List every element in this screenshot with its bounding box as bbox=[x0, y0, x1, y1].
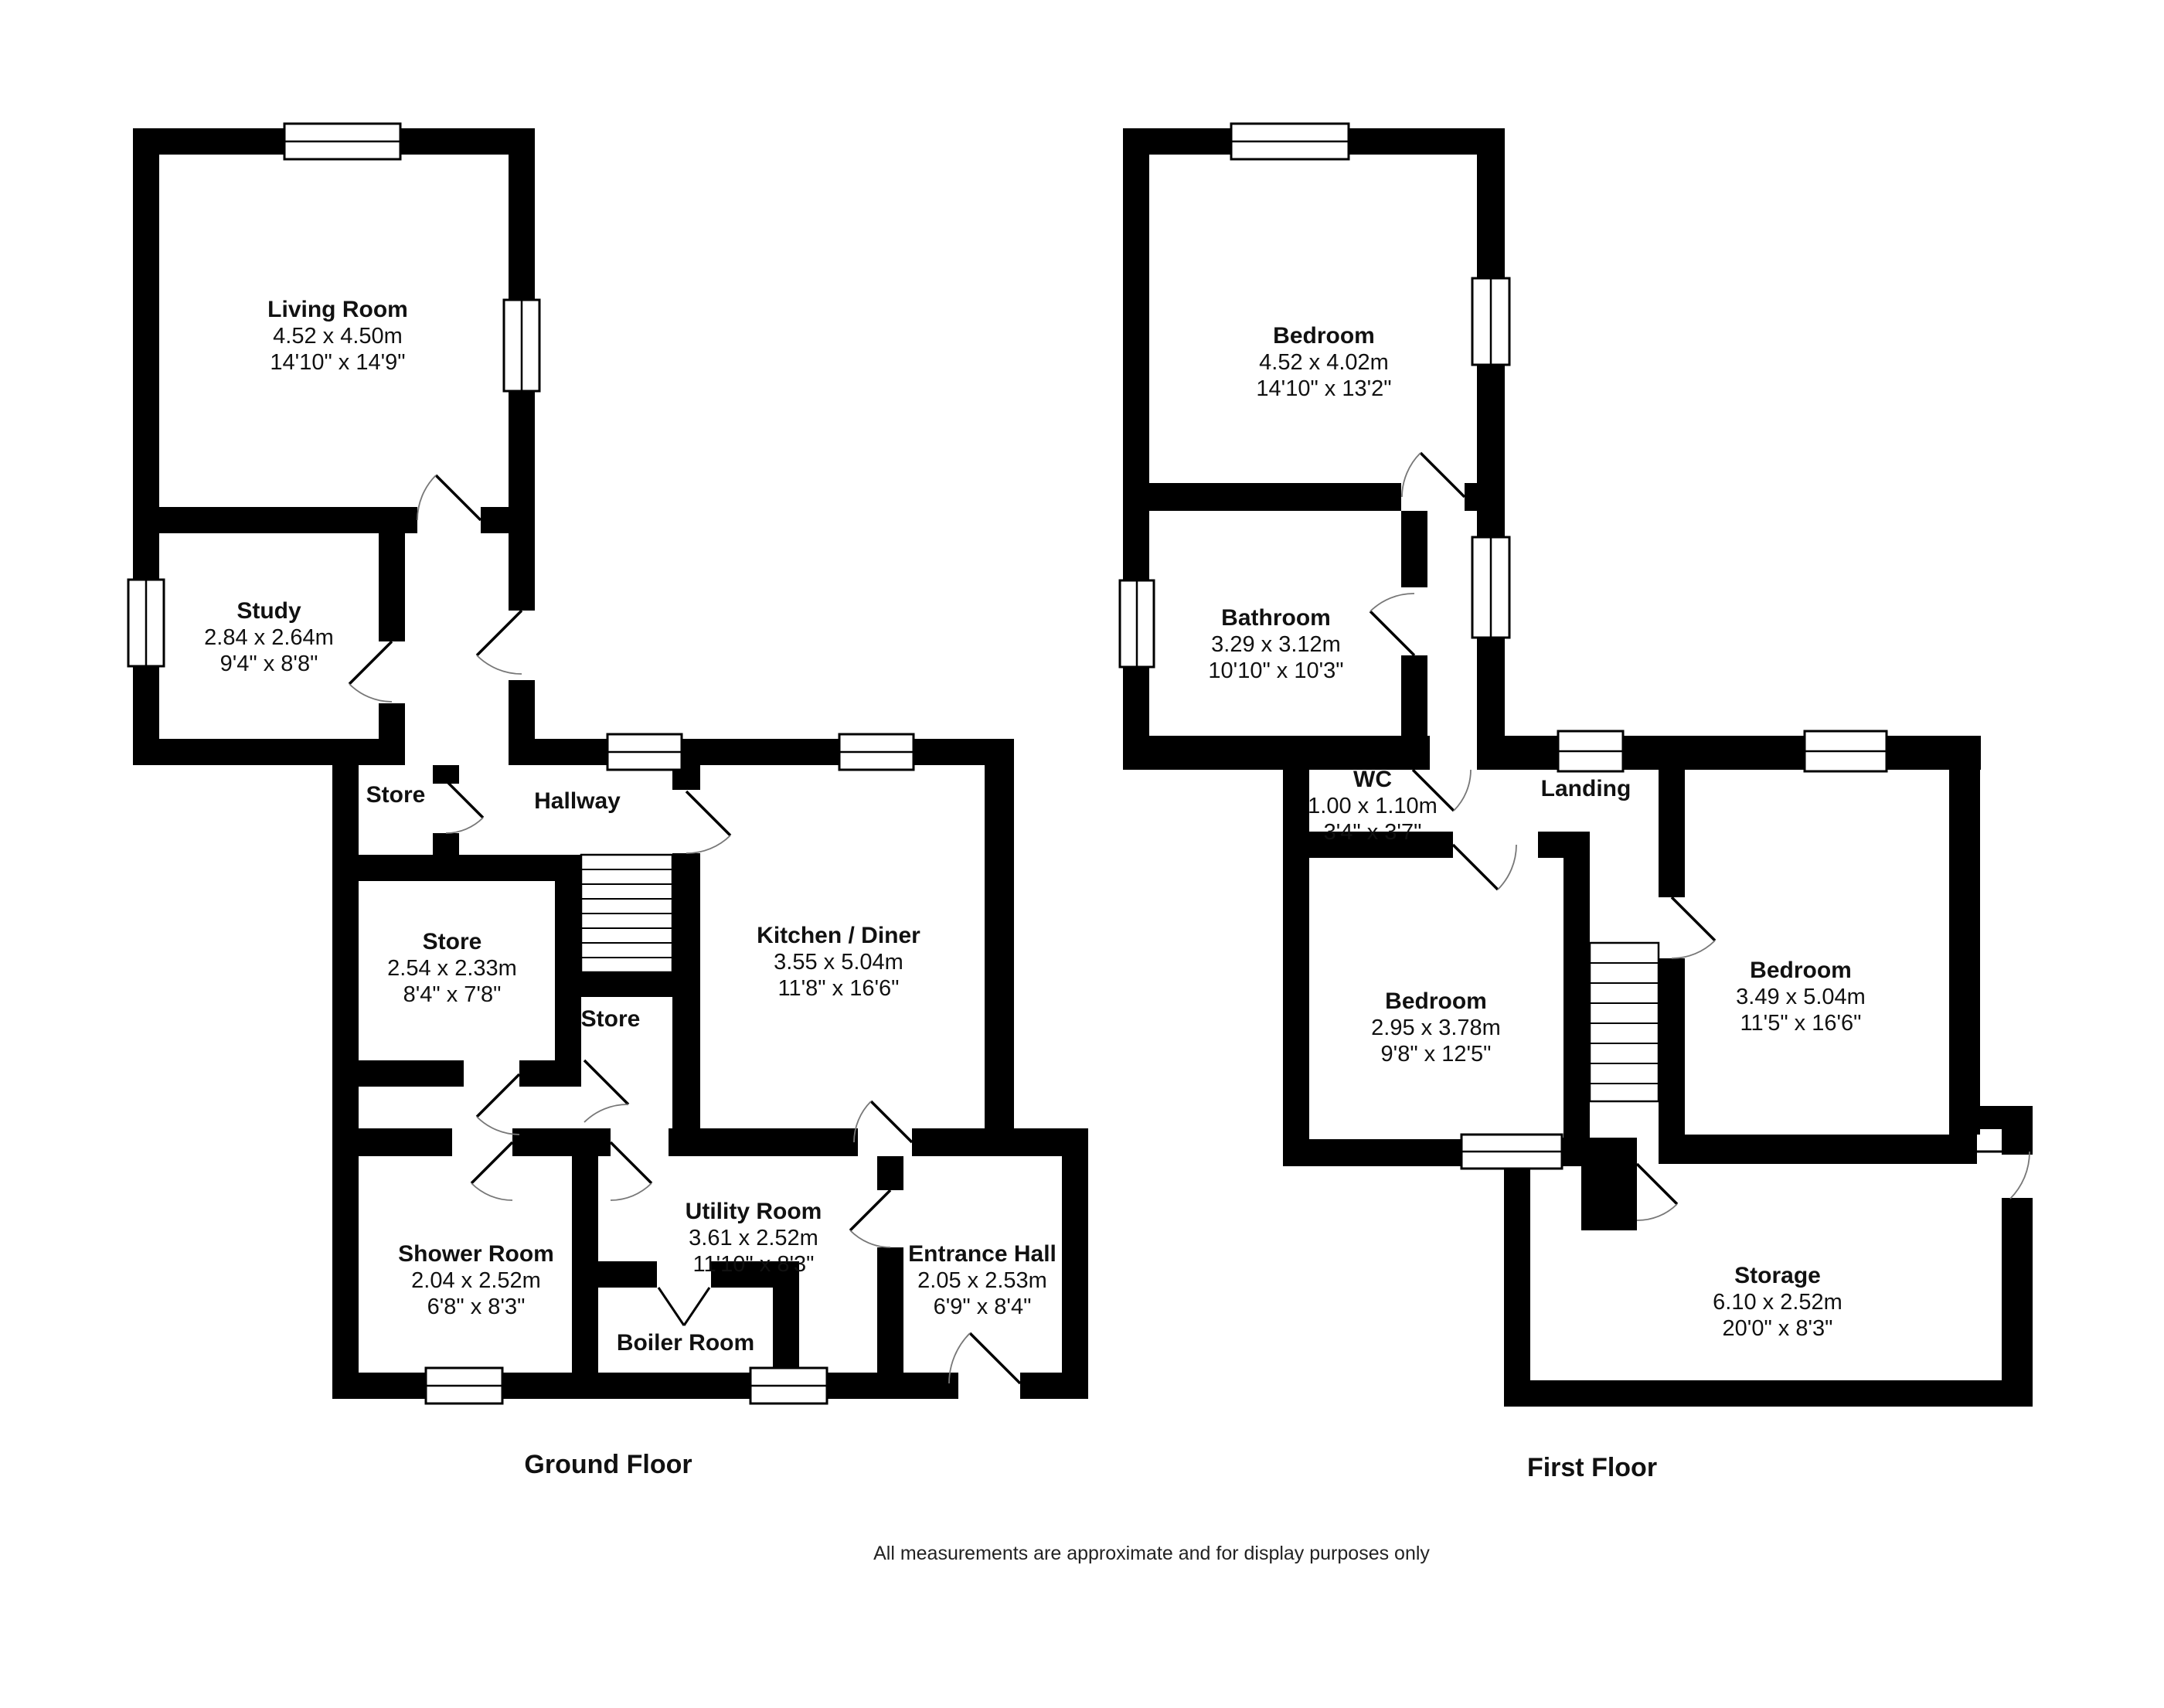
floorplan-page: Living Room 4.52 x 4.50m 14'10" x 14'9" … bbox=[0, 0, 2164, 1708]
label-boiler-room: Boiler Room bbox=[617, 1329, 754, 1356]
label-living-room: Living Room 4.52 x 4.50m 14'10" x 14'9" bbox=[267, 296, 408, 376]
disclaimer-text: All measurements are approximate and for… bbox=[873, 1543, 1430, 1565]
ground-floor-staircase bbox=[581, 855, 672, 972]
label-bedroom-2: Bedroom 2.95 x 3.78m 9'8" x 12'5" bbox=[1371, 988, 1501, 1067]
label-bathroom: Bathroom 3.29 x 3.12m 10'10" x 10'3" bbox=[1208, 604, 1343, 684]
first-floor-staircase bbox=[1590, 943, 1659, 1101]
label-utility-room: Utility Room 3.61 x 2.52m 11'10" x 8'3" bbox=[686, 1198, 822, 1278]
label-store-closet: Store bbox=[366, 781, 426, 808]
label-landing: Landing bbox=[1541, 775, 1632, 802]
label-study: Study 2.84 x 2.64m 9'4" x 8'8" bbox=[204, 597, 334, 677]
label-wc: WC 1.00 x 1.10m 3'4" x 3'7" bbox=[1308, 766, 1438, 845]
label-bedroom-1: Bedroom 4.52 x 4.02m 14'10" x 13'2" bbox=[1256, 322, 1391, 402]
first-floor-doors bbox=[1370, 453, 2030, 1220]
floorplan-drawing bbox=[0, 0, 2164, 1708]
label-hallway: Hallway bbox=[534, 788, 621, 815]
label-kitchen-diner: Kitchen / Diner 3.55 x 5.04m 11'8" x 16'… bbox=[757, 922, 920, 1002]
label-entrance-hall: Entrance Hall 2.05 x 2.53m 6'9" x 8'4" bbox=[908, 1240, 1056, 1320]
ground-floor-title: Ground Floor bbox=[524, 1450, 692, 1480]
label-bedroom-3: Bedroom 3.49 x 5.04m 11'5" x 16'6" bbox=[1736, 957, 1866, 1036]
first-floor-title: First Floor bbox=[1527, 1453, 1657, 1483]
label-store-small: Store bbox=[581, 1005, 641, 1033]
label-storage: Storage 6.10 x 2.52m 20'0" x 8'3" bbox=[1713, 1262, 1842, 1342]
label-store-room: Store 2.54 x 2.33m 8'4" x 7'8" bbox=[387, 928, 517, 1008]
label-shower-room: Shower Room 2.04 x 2.52m 6'8" x 8'3" bbox=[398, 1240, 554, 1320]
